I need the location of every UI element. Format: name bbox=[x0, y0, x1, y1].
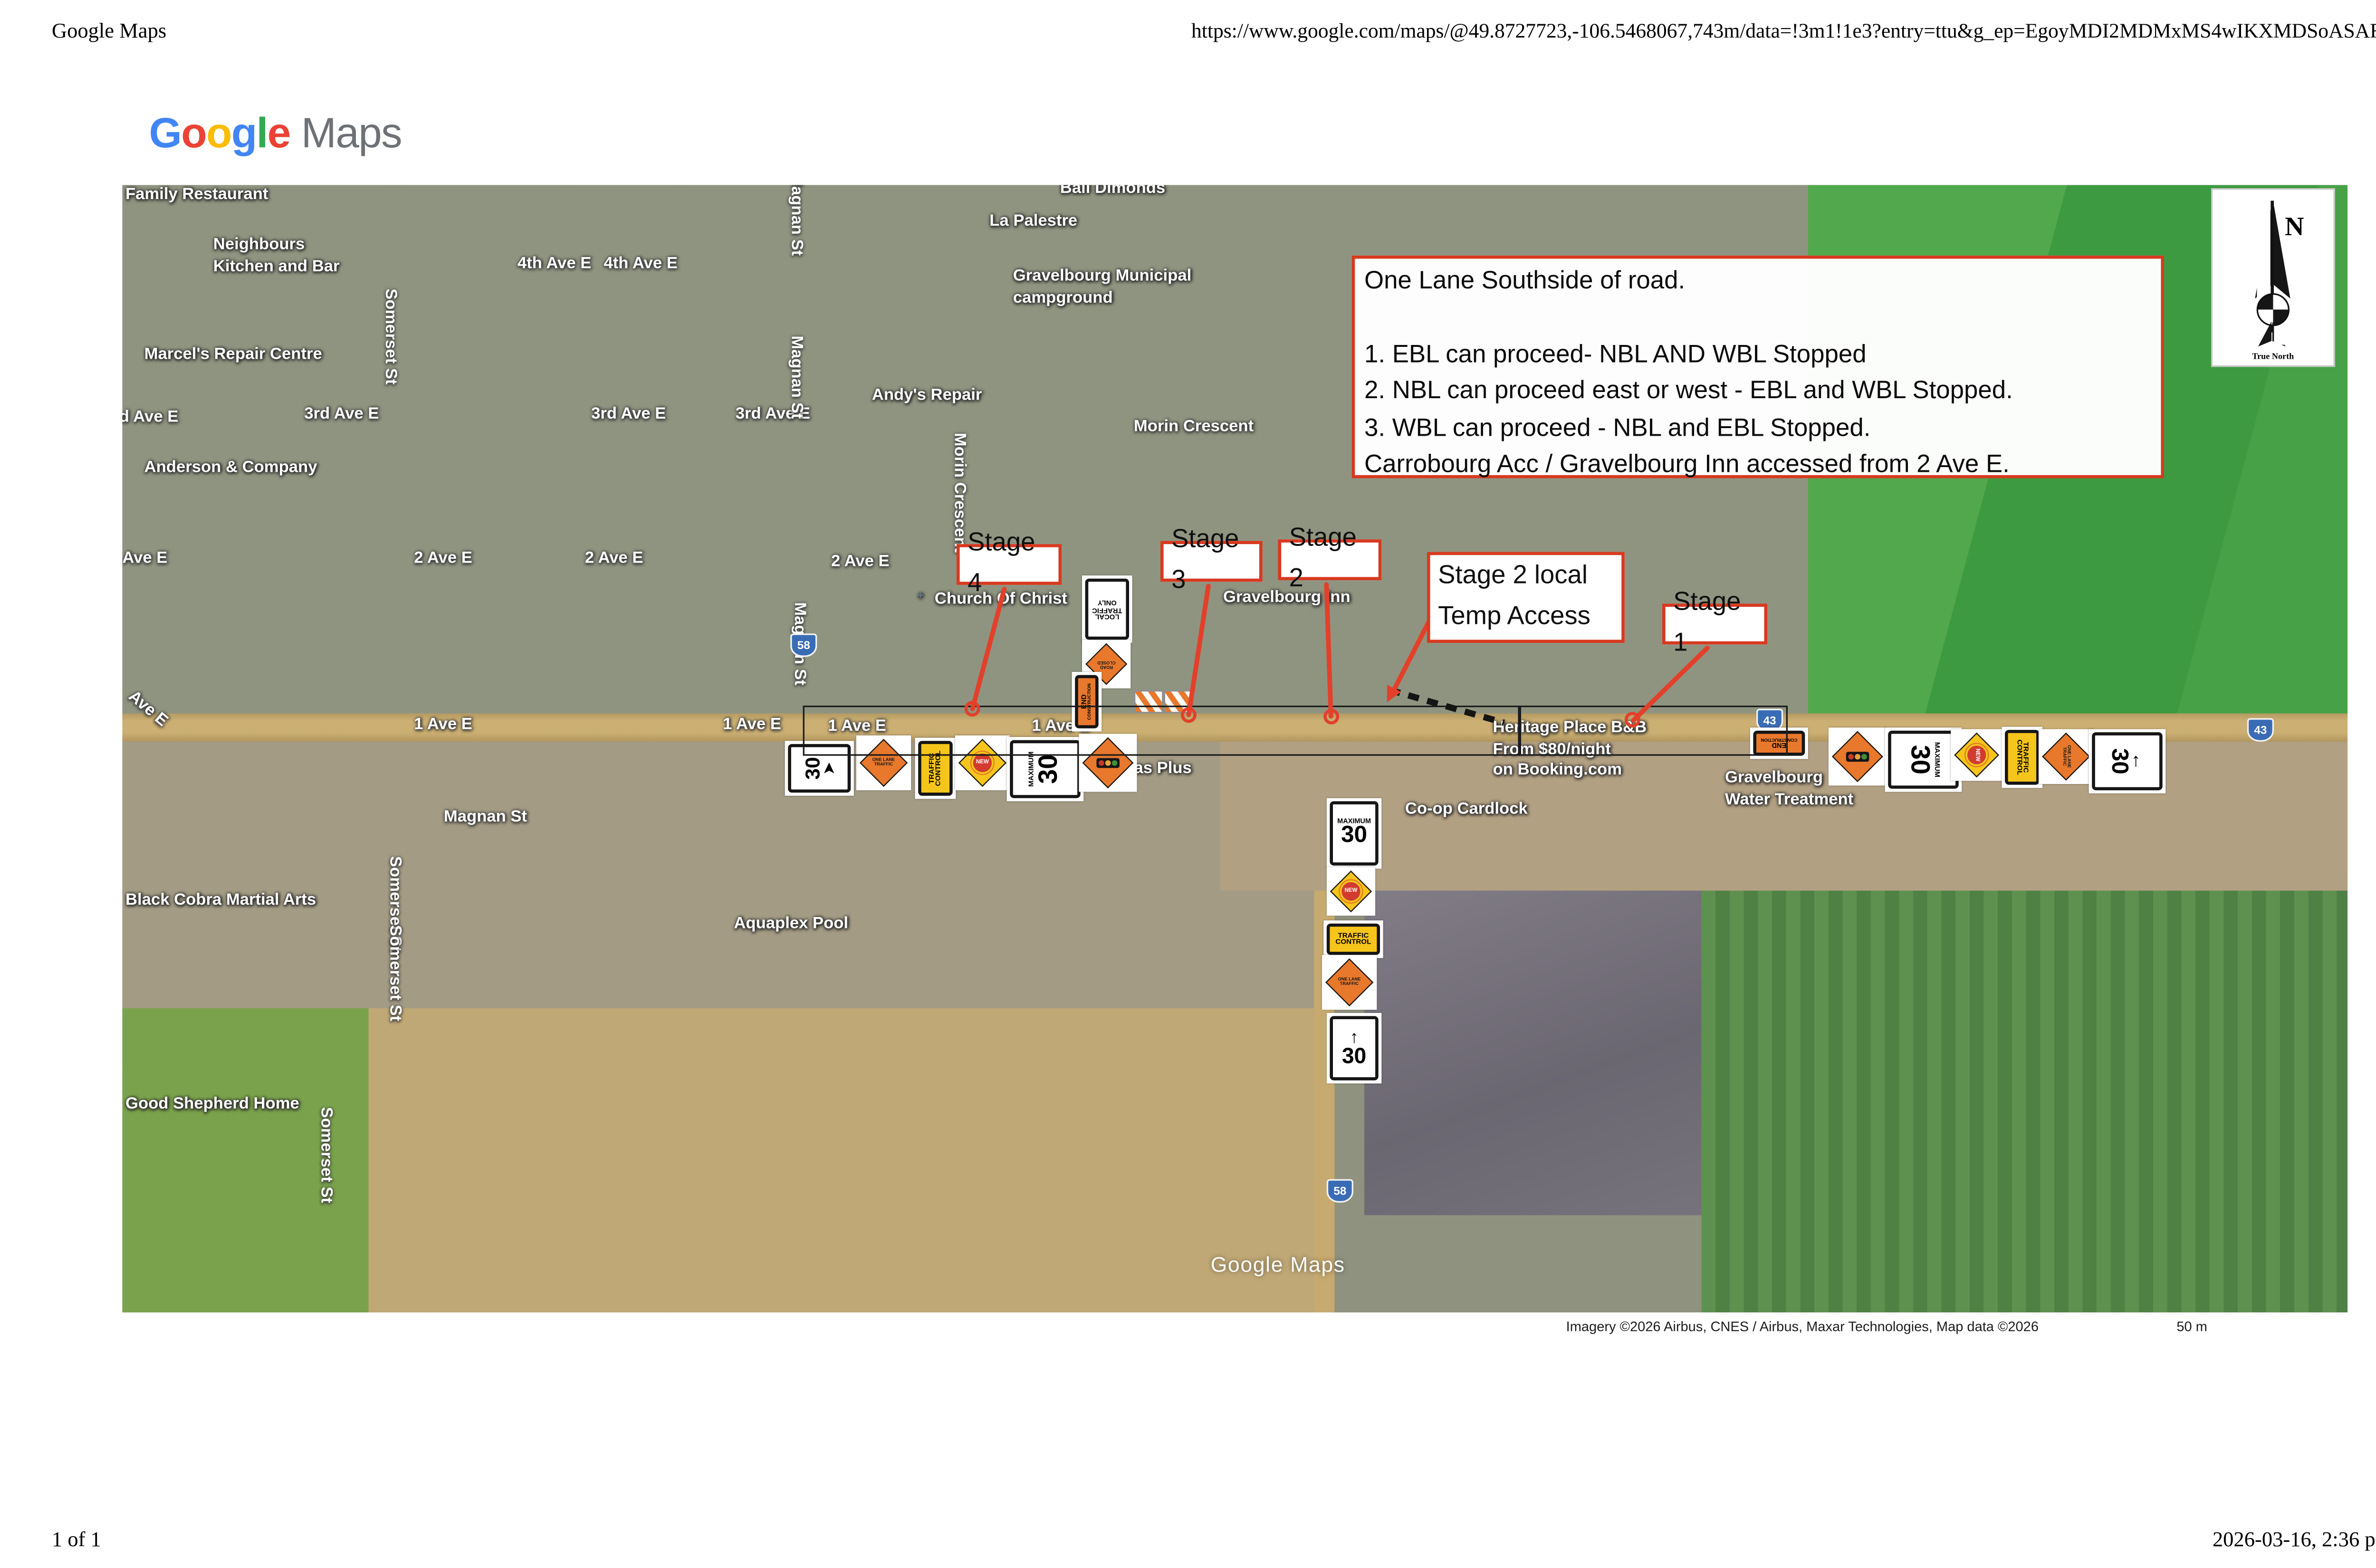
new-sign: NEW bbox=[1327, 867, 1375, 916]
poi-label: Aquaplex Pool bbox=[734, 914, 870, 936]
sign-text bbox=[1096, 758, 1120, 768]
sign-text: NEW bbox=[973, 754, 992, 772]
compass-caption: True North bbox=[2213, 353, 2333, 363]
logo-letter: G bbox=[149, 110, 182, 157]
gen-pin bbox=[850, 386, 867, 408]
sign-text: NEW bbox=[1967, 746, 1986, 764]
map-scale-text: 50 m bbox=[2176, 1319, 2207, 1334]
sign-text: NEW bbox=[1341, 882, 1360, 900]
sign-face: TRAFFICCONTROL bbox=[1327, 924, 1380, 955]
compass-rose: N True North bbox=[2211, 188, 2335, 367]
compass-arrow-outline bbox=[2255, 201, 2272, 302]
logo-letter: l bbox=[257, 110, 268, 157]
stage-leader-endpoint bbox=[1181, 707, 1197, 723]
poi-label-text: Gravelbourg Municipal campground bbox=[1013, 267, 1191, 309]
street-label: 2 Ave E bbox=[831, 552, 890, 571]
compass-tail-outline bbox=[2272, 322, 2286, 347]
footer-datetime: 2026-03-16, 2:36 p.m. bbox=[2213, 1527, 2376, 1552]
poi-label: Anderson & Company bbox=[122, 458, 317, 480]
poi-label-text: Co-op Cardlock bbox=[1405, 800, 1528, 821]
sign-text: NEW bbox=[1341, 882, 1360, 900]
street-label: Magnan St bbox=[787, 335, 806, 419]
annotation-line: Carrobourg Acc / Gravelbourg Inn accesse… bbox=[1364, 447, 2152, 483]
poi-label-text: Neighbours Kitchen and Bar bbox=[213, 235, 340, 278]
sign-face: MAXIMUM30 bbox=[1888, 731, 1958, 789]
sign-face: ↑30 bbox=[1330, 1016, 1378, 1080]
cross-pin: + bbox=[913, 590, 930, 612]
sign-text: NEW bbox=[1967, 746, 1986, 764]
one-lane-traffic-sign: ONE LANE TRAFFIC bbox=[2039, 729, 2094, 784]
street-label: 4th Ave E bbox=[604, 254, 678, 273]
street-label: Somerset St bbox=[381, 288, 400, 384]
speed-30-left-arrow-sign: ←30 bbox=[2089, 729, 2166, 794]
sign-face: ONE LANE TRAFFIC bbox=[2042, 733, 2090, 781]
poi-label-text: Aquaplex Pool bbox=[734, 914, 848, 936]
traffic-control-sign: TRAFFICCONTROL bbox=[1323, 920, 1383, 958]
stage-label-box: Stage 1 bbox=[1662, 604, 1767, 645]
poi-label-text: Marcel's Repair Centre bbox=[144, 345, 322, 366]
stage-label-box: Stage 4 bbox=[957, 544, 1062, 585]
fuel-pin bbox=[1197, 759, 1214, 781]
street-label: 2 Ave E bbox=[585, 549, 643, 568]
local-traffic-only-sign: LOCALTRAFFICONLY bbox=[1082, 575, 1132, 643]
poi-label-text: Andy's Repair bbox=[872, 386, 982, 407]
sign-face: LOCALTRAFFICONLY bbox=[1085, 579, 1129, 640]
stage-label-box: Stage 2 local Temp Access bbox=[1427, 552, 1625, 643]
gen-pin bbox=[122, 458, 139, 480]
sign-text: ONE LANE TRAFFIC bbox=[2061, 745, 2071, 768]
sign-text: TRAFFIC bbox=[1092, 606, 1122, 612]
poi-label-text: Ball Dimonds bbox=[1060, 185, 1165, 200]
street-label: 1 Ave E bbox=[414, 715, 472, 734]
sign-text: 30 bbox=[1341, 825, 1367, 848]
map-canvas: One Lane Southside of road.1. EBL can pr… bbox=[122, 185, 2347, 1312]
sign-text: CONTROL bbox=[1335, 939, 1371, 946]
speed-30-ahead-sign: ↑30 bbox=[1327, 1013, 1382, 1084]
gen-pin bbox=[321, 890, 338, 912]
annotation-line: 2. NBL can proceed east or west - EBL an… bbox=[1364, 373, 2152, 410]
sign-text: ➤ bbox=[822, 763, 835, 774]
sheet: Google Maps https://www.google.com/maps/… bbox=[0, 0, 2376, 1568]
sign-text: CONTROL bbox=[935, 751, 942, 786]
traffic-signal-ahead-sign bbox=[1829, 727, 1887, 785]
logo-letter: o bbox=[206, 110, 231, 157]
google-logo-letters: Google bbox=[149, 110, 290, 157]
poi-label: Neighbours Kitchen and Bar bbox=[192, 235, 340, 278]
sign-face: ←30 bbox=[2092, 732, 2163, 790]
page-header-url: https://www.google.com/maps/@49.8727723,… bbox=[1191, 19, 2376, 44]
annotation-line: One Lane Southside of road. bbox=[1364, 263, 2152, 300]
compass-ball bbox=[2257, 293, 2290, 326]
highway-58-shield: 58 bbox=[1327, 1179, 1353, 1203]
work-zone-divider bbox=[1518, 706, 1520, 756]
poi-label: Marcel's Repair Centre bbox=[122, 345, 322, 367]
google-logo-suffix: Maps bbox=[301, 110, 402, 157]
sign-face: NEW bbox=[1954, 733, 1999, 778]
street-label: Somerset St bbox=[317, 1107, 336, 1203]
field-southeast bbox=[1702, 870, 2348, 1313]
food-pin bbox=[192, 235, 209, 257]
page-header-title: Google Maps bbox=[52, 19, 166, 44]
street-label: 1 Ave E bbox=[723, 715, 781, 734]
street-label: Magnan St bbox=[444, 808, 527, 827]
annotation-line bbox=[1364, 300, 2152, 337]
street-label: Morin Crescent bbox=[1134, 417, 1254, 436]
stage-leader-endpoint bbox=[1625, 712, 1640, 727]
signal-icon bbox=[1096, 758, 1120, 768]
street-label: Ave E bbox=[122, 549, 167, 568]
poi-label: Co-op Cardlock bbox=[1383, 800, 1528, 822]
one-lane-traffic-sign: ONE LANE TRAFFIC bbox=[1322, 955, 1377, 1010]
street-label: Morin Crescent bbox=[950, 433, 969, 553]
sign-face: NEW bbox=[1330, 870, 1372, 912]
poi-label: Andy's Repair bbox=[850, 386, 982, 408]
field-tan bbox=[369, 1004, 1314, 1312]
sign-face bbox=[1832, 731, 1883, 782]
sign-text bbox=[1846, 752, 1869, 761]
sign-text: ONE LANE TRAFFIC bbox=[872, 758, 895, 768]
gen-pin bbox=[304, 1094, 321, 1116]
sign-text: ONE LANE TRAFFIC bbox=[1338, 977, 1361, 987]
tree-pin bbox=[991, 267, 1008, 288]
maximum-30-sign: MAXIMUM30 bbox=[1885, 727, 1962, 792]
street-label: 4th Ave E bbox=[517, 254, 591, 273]
sign-face: ONE LANE TRAFFIC bbox=[1325, 958, 1373, 1006]
annotation-line: 3. WBL can proceed - NBL and EBL Stopped… bbox=[1364, 410, 2152, 447]
field-purple bbox=[1364, 870, 1702, 1215]
poi-label-text: Anderson & Company bbox=[144, 458, 317, 479]
traffic-plan-annotation: One Lane Southside of road.1. EBL can pr… bbox=[1352, 256, 2164, 478]
sign-text: ONLY bbox=[1098, 599, 1117, 606]
street-label: Somerset St bbox=[386, 925, 405, 1021]
printed-page: Google Maps https://www.google.com/maps/… bbox=[0, 0, 2376, 1568]
street-label: d Ave E bbox=[122, 408, 178, 427]
sign-text: NEW bbox=[973, 754, 992, 772]
highway-58-shield: 58 bbox=[790, 633, 817, 657]
sign-text: CONTROL bbox=[2015, 739, 2022, 775]
stage-label-box: Stage 2 bbox=[1278, 539, 1382, 580]
stage-label-box: Stage 3 bbox=[1160, 541, 1263, 582]
gen-pin bbox=[122, 345, 139, 367]
poi-label-text: La Palestre bbox=[989, 212, 1077, 233]
poi-label-text: Good Shepherd Home bbox=[125, 1094, 299, 1116]
street-label: 3rd Ave E bbox=[591, 404, 666, 423]
sign-text: ROAD CLOSED bbox=[1097, 659, 1116, 669]
sign-face: TRAFFICCONTROL bbox=[2005, 730, 2040, 785]
highway-43-shield: 43 bbox=[2247, 718, 2274, 742]
logo-letter: g bbox=[231, 110, 257, 157]
logo-letter: e bbox=[268, 110, 290, 157]
sign-text: 30 bbox=[2107, 748, 2129, 774]
sign-text: 30 bbox=[1342, 1046, 1366, 1067]
annotation-line: 1. EBL can proceed- NBL AND WBL Stopped bbox=[1364, 337, 2152, 373]
new-sign: NEW bbox=[1951, 729, 2002, 781]
map-watermark: Google Maps bbox=[1211, 1253, 1345, 1277]
street-label: Magnan St bbox=[787, 185, 806, 256]
green-pin bbox=[1170, 185, 1187, 201]
poi-label: La Palestre bbox=[968, 212, 1077, 234]
stage-leader-endpoint bbox=[965, 701, 980, 717]
poi-label: Good Shepherd Home bbox=[125, 1094, 321, 1116]
sign-text: 30 bbox=[803, 757, 823, 780]
maximum-30-sign: MAXIMUM30 bbox=[1327, 798, 1382, 869]
green-pin bbox=[853, 914, 870, 936]
green-pin bbox=[968, 212, 985, 234]
google-maps-logo: GoogleMaps bbox=[149, 110, 402, 158]
stage-leader-endpoint bbox=[1323, 709, 1339, 725]
sign-face: MAXIMUM30 bbox=[1330, 801, 1378, 865]
map-attribution: Imagery ©2026 Airbus, CNES / Airbus, Max… bbox=[0, 1319, 2039, 1334]
poi-label: Family Restaurant bbox=[125, 185, 268, 206]
poi-label-text: Family Restaurant bbox=[125, 185, 268, 206]
poi-label: Black Cobra Martial Arts bbox=[125, 890, 338, 912]
poi-label: Gravelbourg Municipal campground bbox=[991, 267, 1192, 309]
sign-text: 30 bbox=[1907, 745, 1933, 774]
logo-letter: o bbox=[181, 110, 206, 157]
signal-icon bbox=[1846, 752, 1869, 761]
poi-label-text: Black Cobra Martial Arts bbox=[125, 890, 316, 912]
fuel-pin bbox=[1383, 800, 1400, 822]
footer-page-count: 1 of 1 bbox=[52, 1527, 101, 1552]
street-label: 3rd Ave E bbox=[304, 404, 379, 423]
sign-text: 30 bbox=[1036, 754, 1061, 784]
street-label: 2 Ave E bbox=[414, 549, 472, 568]
poi-label: Ball Dimonds bbox=[1060, 185, 1188, 201]
traffic-control-sign: TRAFFICCONTROL bbox=[2002, 727, 2042, 788]
compass-north-letter: N bbox=[2285, 212, 2304, 243]
